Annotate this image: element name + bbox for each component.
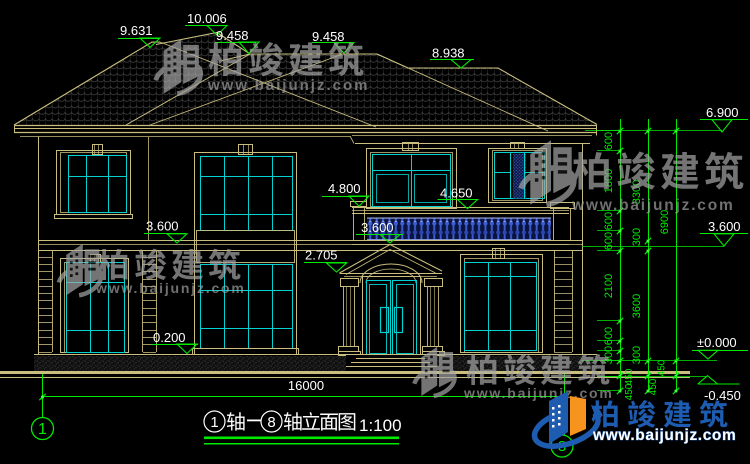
svg-text:0.200: 0.200 — [153, 330, 186, 345]
svg-text:600: 600 — [603, 232, 615, 250]
svg-text:www.baijunjz.com: www.baijunjz.com — [463, 385, 614, 401]
svg-text:2.705: 2.705 — [305, 248, 338, 263]
svg-text:-0.450: -0.450 — [704, 388, 741, 403]
svg-text:300: 300 — [631, 228, 643, 246]
svg-text:450: 450 — [657, 359, 668, 376]
svg-text:www.baijunjz.com: www.baijunjz.com — [207, 77, 369, 94]
svg-text:1: 1 — [38, 421, 47, 438]
svg-text:8.938: 8.938 — [432, 46, 465, 61]
svg-text:6.900: 6.900 — [706, 105, 739, 120]
svg-text:3.600: 3.600 — [361, 220, 394, 235]
svg-text:3.600: 3.600 — [146, 219, 179, 234]
svg-text:3600: 3600 — [631, 294, 643, 318]
svg-text:10.006: 10.006 — [187, 11, 227, 26]
svg-text:3.600: 3.600 — [708, 219, 741, 234]
svg-text:600: 600 — [603, 327, 615, 345]
svg-text:www.baijunjz.com: www.baijunjz.com — [571, 197, 735, 214]
svg-text:450: 450 — [624, 368, 635, 385]
svg-text:600: 600 — [603, 212, 615, 230]
svg-text:450: 450 — [648, 378, 659, 395]
svg-text:4.650: 4.650 — [440, 186, 473, 201]
svg-text:9.458: 9.458 — [312, 29, 345, 44]
svg-text:300: 300 — [631, 346, 643, 364]
svg-text:8: 8 — [267, 414, 275, 431]
svg-text:www.baijunjz.com: www.baijunjz.com — [95, 280, 246, 296]
svg-text:4.800: 4.800 — [328, 181, 361, 196]
svg-text:9.458: 9.458 — [216, 28, 249, 43]
svg-text:9.631: 9.631 — [120, 23, 153, 38]
svg-text:2100: 2100 — [603, 274, 615, 298]
svg-text:1:100: 1:100 — [359, 416, 402, 435]
svg-text:±0.000: ±0.000 — [697, 335, 737, 350]
svg-text:600: 600 — [603, 132, 615, 150]
svg-text:450: 450 — [624, 383, 635, 400]
svg-text:1: 1 — [210, 414, 218, 431]
svg-text:www.baijunjz.com: www.baijunjz.com — [592, 427, 736, 444]
svg-text:300: 300 — [603, 346, 615, 364]
svg-text:16000: 16000 — [288, 378, 324, 393]
